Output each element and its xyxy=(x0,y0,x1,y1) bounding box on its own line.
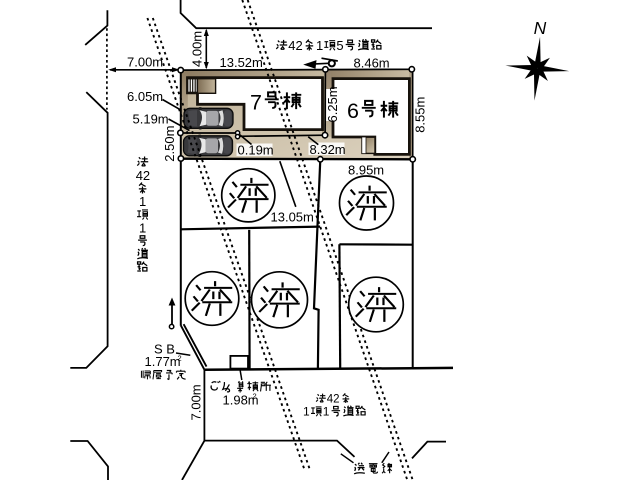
svg-text:5.19m: 5.19m xyxy=(133,112,169,127)
svg-text:6: 6 xyxy=(347,99,359,123)
svg-text:5: 5 xyxy=(336,38,343,53)
svg-text:2: 2 xyxy=(253,392,257,401)
svg-text:N: N xyxy=(534,18,547,38)
svg-text:1.77m: 1.77m xyxy=(145,354,181,369)
svg-text:2.50m: 2.50m xyxy=(162,126,177,162)
svg-text:1: 1 xyxy=(303,405,310,419)
svg-text:6.05m: 6.05m xyxy=(127,89,163,104)
svg-text:7: 7 xyxy=(250,91,262,115)
svg-text:8.55m: 8.55m xyxy=(412,97,427,133)
svg-text:1: 1 xyxy=(139,220,146,235)
svg-text:13.52m: 13.52m xyxy=(220,55,263,70)
svg-text:42: 42 xyxy=(288,38,302,53)
svg-text:7.00m: 7.00m xyxy=(127,55,163,70)
svg-text:8.46m: 8.46m xyxy=(354,56,390,71)
svg-text:1: 1 xyxy=(316,38,323,53)
svg-text:8.32m: 8.32m xyxy=(310,142,346,157)
svg-text:42: 42 xyxy=(136,168,150,183)
svg-text:1: 1 xyxy=(323,405,330,419)
svg-text:0.19m: 0.19m xyxy=(238,143,274,158)
svg-text:6.25m: 6.25m xyxy=(325,86,340,122)
svg-text:1: 1 xyxy=(139,194,146,209)
svg-text:7.00m: 7.00m xyxy=(188,384,203,420)
svg-text:4.00m: 4.00m xyxy=(189,31,204,67)
svg-text:8.95m: 8.95m xyxy=(348,163,384,178)
svg-text:13.05m: 13.05m xyxy=(271,210,314,225)
svg-text:2: 2 xyxy=(178,354,182,363)
